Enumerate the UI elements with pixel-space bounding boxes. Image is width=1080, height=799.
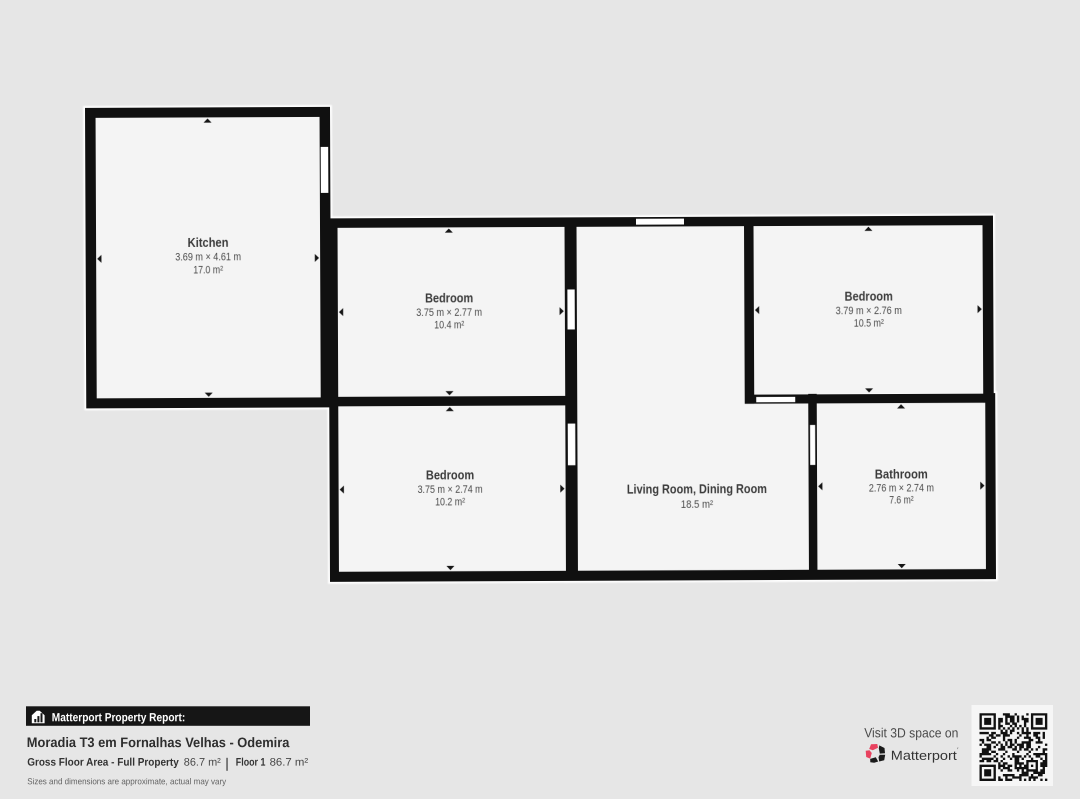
svg-text:Bathroom: Bathroom (875, 466, 928, 481)
svg-text:Bedroom: Bedroom (845, 289, 893, 304)
svg-text:2.76 m × 2.74 m: 2.76 m × 2.74 m (869, 482, 934, 494)
svg-text:10.5 m²: 10.5 m² (854, 318, 884, 330)
svg-text:Living Room, Dining Room: Living Room, Dining Room (627, 481, 767, 497)
svg-text:86.7 m²: 86.7 m² (270, 757, 309, 769)
svg-text:86.7 m²: 86.7 m² (184, 757, 221, 769)
svg-text:′: ′ (957, 748, 959, 754)
svg-text:18.5 m²: 18.5 m² (681, 499, 714, 511)
svg-text:Bedroom: Bedroom (425, 290, 473, 305)
svg-text:Moradia T3 em Fornalhas Velhas: Moradia T3 em Fornalhas Velhas - Odemira (27, 735, 290, 750)
svg-text:3.75 m × 2.74 m: 3.75 m × 2.74 m (418, 484, 483, 496)
svg-text:Floor 1: Floor 1 (236, 757, 266, 769)
svg-text:Bedroom: Bedroom (426, 467, 474, 482)
svg-text:Sizes and dimensions are appro: Sizes and dimensions are approximate, ac… (27, 776, 227, 786)
svg-text:Matterport: Matterport (891, 748, 957, 763)
svg-text:3.69 m × 4.61 m: 3.69 m × 4.61 m (175, 251, 241, 263)
svg-text:17.0 m²: 17.0 m² (193, 264, 223, 276)
svg-text:Kitchen: Kitchen (188, 235, 229, 250)
svg-text:10.2 m²: 10.2 m² (435, 496, 465, 508)
svg-text:Gross Floor Area - Full Proper: Gross Floor Area - Full Property (27, 757, 179, 769)
svg-text:10.4 m²: 10.4 m² (434, 320, 464, 332)
svg-text:Matterport Property Report:: Matterport Property Report: (52, 710, 185, 724)
svg-text:Visit 3D space on: Visit 3D space on (864, 725, 958, 740)
svg-text:7.6 m²: 7.6 m² (889, 494, 914, 506)
svg-text:3.79 m × 2.76 m: 3.79 m × 2.76 m (836, 305, 902, 317)
svg-text:3.75 m × 2.77 m: 3.75 m × 2.77 m (416, 307, 482, 319)
